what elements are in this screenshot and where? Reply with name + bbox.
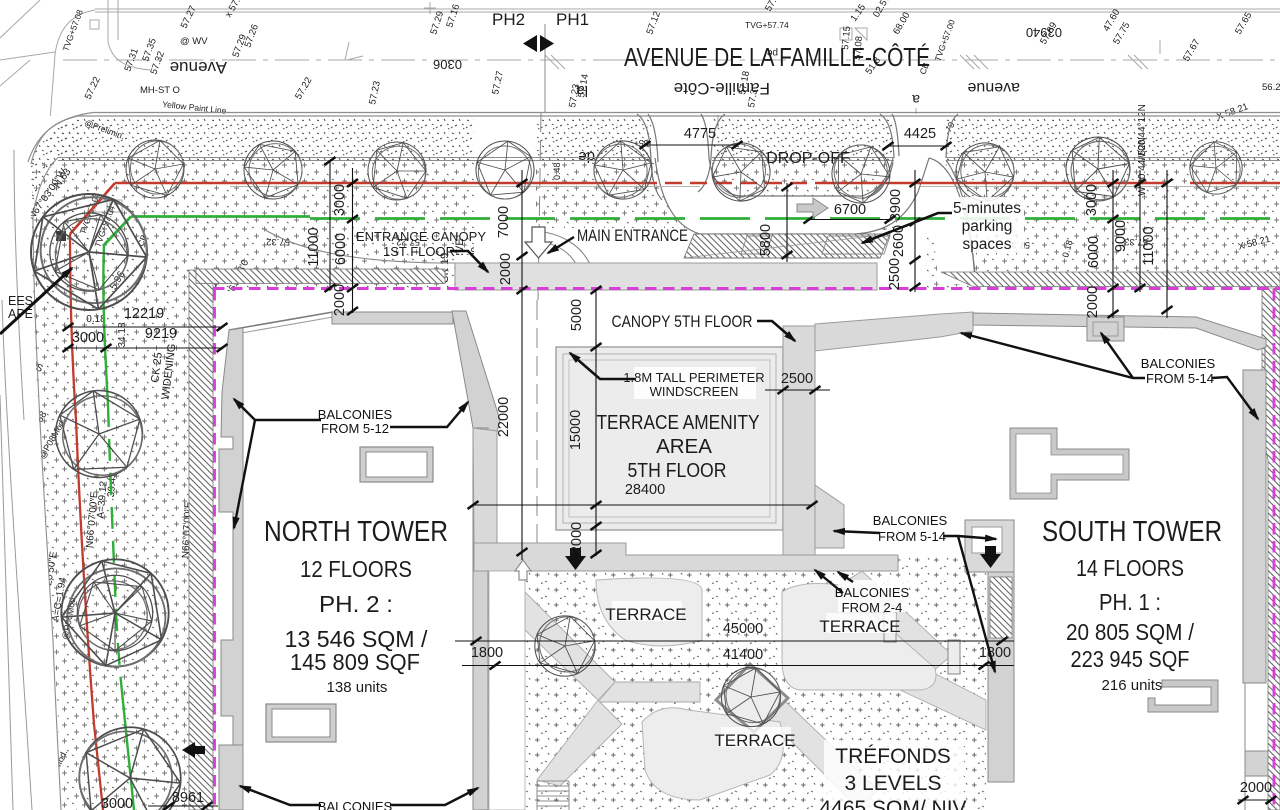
svg-text:MH-ST O: MH-ST O [140, 85, 180, 96]
svg-text:22000: 22000 [496, 397, 512, 437]
svg-text:PH. 1 :: PH. 1 : [1099, 589, 1161, 615]
svg-text:PH1: PH1 [556, 10, 589, 29]
svg-text:5000: 5000 [569, 299, 585, 331]
svg-text:216 units: 216 units [1102, 677, 1163, 694]
svg-text:2000: 2000 [332, 284, 348, 316]
svg-text:2000: 2000 [1085, 286, 1101, 318]
svg-text:41400: 41400 [723, 647, 763, 663]
svg-text:parking: parking [962, 218, 1013, 235]
svg-text:2500: 2500 [781, 371, 813, 387]
svg-text:spaces: spaces [962, 236, 1011, 253]
svg-text:Famille-Côte: Famille-Côte [674, 79, 770, 98]
svg-text:BALCONIES: BALCONIES [1141, 356, 1216, 371]
svg-text:avenue: avenue [967, 79, 1020, 96]
svg-text:11000: 11000 [1141, 226, 1157, 265]
svg-text:2000: 2000 [569, 522, 585, 554]
svg-text:FROM 5-14: FROM 5-14 [878, 529, 946, 544]
svg-text:WINDSCREEN: WINDSCREEN [650, 384, 739, 399]
svg-text:3000: 3000 [72, 330, 104, 346]
svg-text:3000: 3000 [332, 184, 348, 216]
svg-text:MAIN ENTRANCE: MAIN ENTRANCE [577, 226, 688, 245]
svg-text:BALCONIES: BALCONIES [318, 407, 393, 422]
svg-text:6000: 6000 [333, 233, 349, 265]
svg-text:ENTRANCE CANOPY: ENTRANCE CANOPY [356, 229, 486, 244]
svg-text:2000: 2000 [1240, 780, 1272, 796]
svg-text:03940: 03940 [1026, 25, 1062, 40]
svg-text:2500: 2500 [887, 258, 903, 290]
svg-text:PH. 2 :: PH. 2 : [319, 591, 393, 617]
svg-text:12219: 12219 [124, 306, 164, 322]
svg-text:BALCONIES: BALCONIES [873, 513, 948, 528]
svg-text:BALCONIES: BALCONIES [318, 799, 393, 810]
svg-text:TERRACE AMENITY: TERRACE AMENITY [597, 411, 760, 434]
svg-text:1.8M TALL PERIMETER: 1.8M TALL PERIMETER [623, 370, 764, 385]
svg-text:6700: 6700 [834, 202, 866, 218]
svg-text:56.25: 56.25 [1262, 82, 1280, 93]
svg-text:4465 SQM/ NIV: 4465 SQM/ NIV [819, 797, 966, 810]
svg-text:BALCONIES: BALCONIES [835, 585, 910, 600]
svg-text:145 809 SQF: 145 809 SQF [290, 649, 420, 675]
svg-text:5800: 5800 [758, 224, 774, 256]
svg-text:223 945 SQF: 223 945 SQF [1071, 646, 1190, 672]
svg-text:la: la [576, 82, 588, 99]
svg-text:7000: 7000 [496, 206, 512, 238]
svg-text:FROM 5-12: FROM 5-12 [321, 421, 389, 436]
svg-text:TRÉFONDS: TRÉFONDS [835, 745, 951, 768]
svg-text:Avenue: Avenue [170, 58, 227, 77]
svg-text:9219: 9219 [145, 326, 177, 342]
svg-text:1800: 1800 [979, 645, 1011, 661]
svg-text:NORTH TOWER: NORTH TOWER [264, 516, 448, 548]
svg-text:1ST FLOOR: 1ST FLOOR [383, 244, 455, 259]
svg-text:6000: 6000 [1086, 236, 1102, 268]
svg-text:TERRACE: TERRACE [714, 731, 795, 750]
svg-text:FROM 2-4: FROM 2-4 [842, 600, 903, 615]
svg-text:AVENUE DE LA FAMILLE-CÔTÉ: AVENUE DE LA FAMILLE-CÔTÉ [624, 42, 930, 72]
svg-text:1800: 1800 [471, 645, 503, 661]
svg-text:TERRACE: TERRACE [819, 617, 900, 636]
svg-text:12 FLOORS: 12 FLOORS [300, 556, 412, 582]
svg-text:2000: 2000 [498, 253, 514, 285]
svg-text:14 FLOORS: 14 FLOORS [1076, 555, 1184, 581]
svg-text:9000: 9000 [1113, 220, 1129, 252]
svg-text:FROM 5-14: FROM 5-14 [1146, 371, 1214, 386]
svg-text:5-minutes: 5-minutes [953, 200, 1021, 217]
svg-text:5TH FLOOR: 5TH FLOOR [628, 459, 727, 482]
svg-text:4425: 4425 [904, 126, 936, 142]
svg-text:DROP-OFF: DROP-OFF [766, 150, 850, 167]
svg-text:@ WV: @ WV [180, 36, 208, 47]
svg-text:3 LEVELS: 3 LEVELS [845, 772, 942, 795]
svg-text:0306: 0306 [433, 57, 462, 72]
svg-text:20 805 SQM /: 20 805 SQM / [1066, 619, 1195, 645]
svg-text:PH2: PH2 [492, 10, 525, 29]
svg-text:45000: 45000 [723, 621, 763, 637]
svg-text:15000: 15000 [568, 410, 584, 450]
svg-text:TVG+57.74: TVG+57.74 [745, 20, 789, 30]
svg-text:28400: 28400 [625, 482, 665, 498]
svg-text:3000: 3000 [1084, 184, 1100, 216]
svg-text:3900: 3900 [888, 189, 904, 221]
svg-text:a: a [912, 92, 920, 108]
svg-text:4775: 4775 [684, 126, 716, 142]
svg-text:CANOPY 5TH FLOOR: CANOPY 5TH FLOOR [612, 313, 753, 331]
svg-text:8961: 8961 [172, 790, 204, 806]
svg-text:AREA: AREA [656, 435, 712, 458]
svg-text:TERRACE: TERRACE [605, 605, 686, 624]
svg-text:11000: 11000 [306, 227, 322, 266]
svg-text:3000: 3000 [101, 796, 133, 810]
svg-text:138 units: 138 units [327, 679, 388, 696]
svg-text:SOUTH TOWER: SOUTH TOWER [1042, 516, 1222, 548]
